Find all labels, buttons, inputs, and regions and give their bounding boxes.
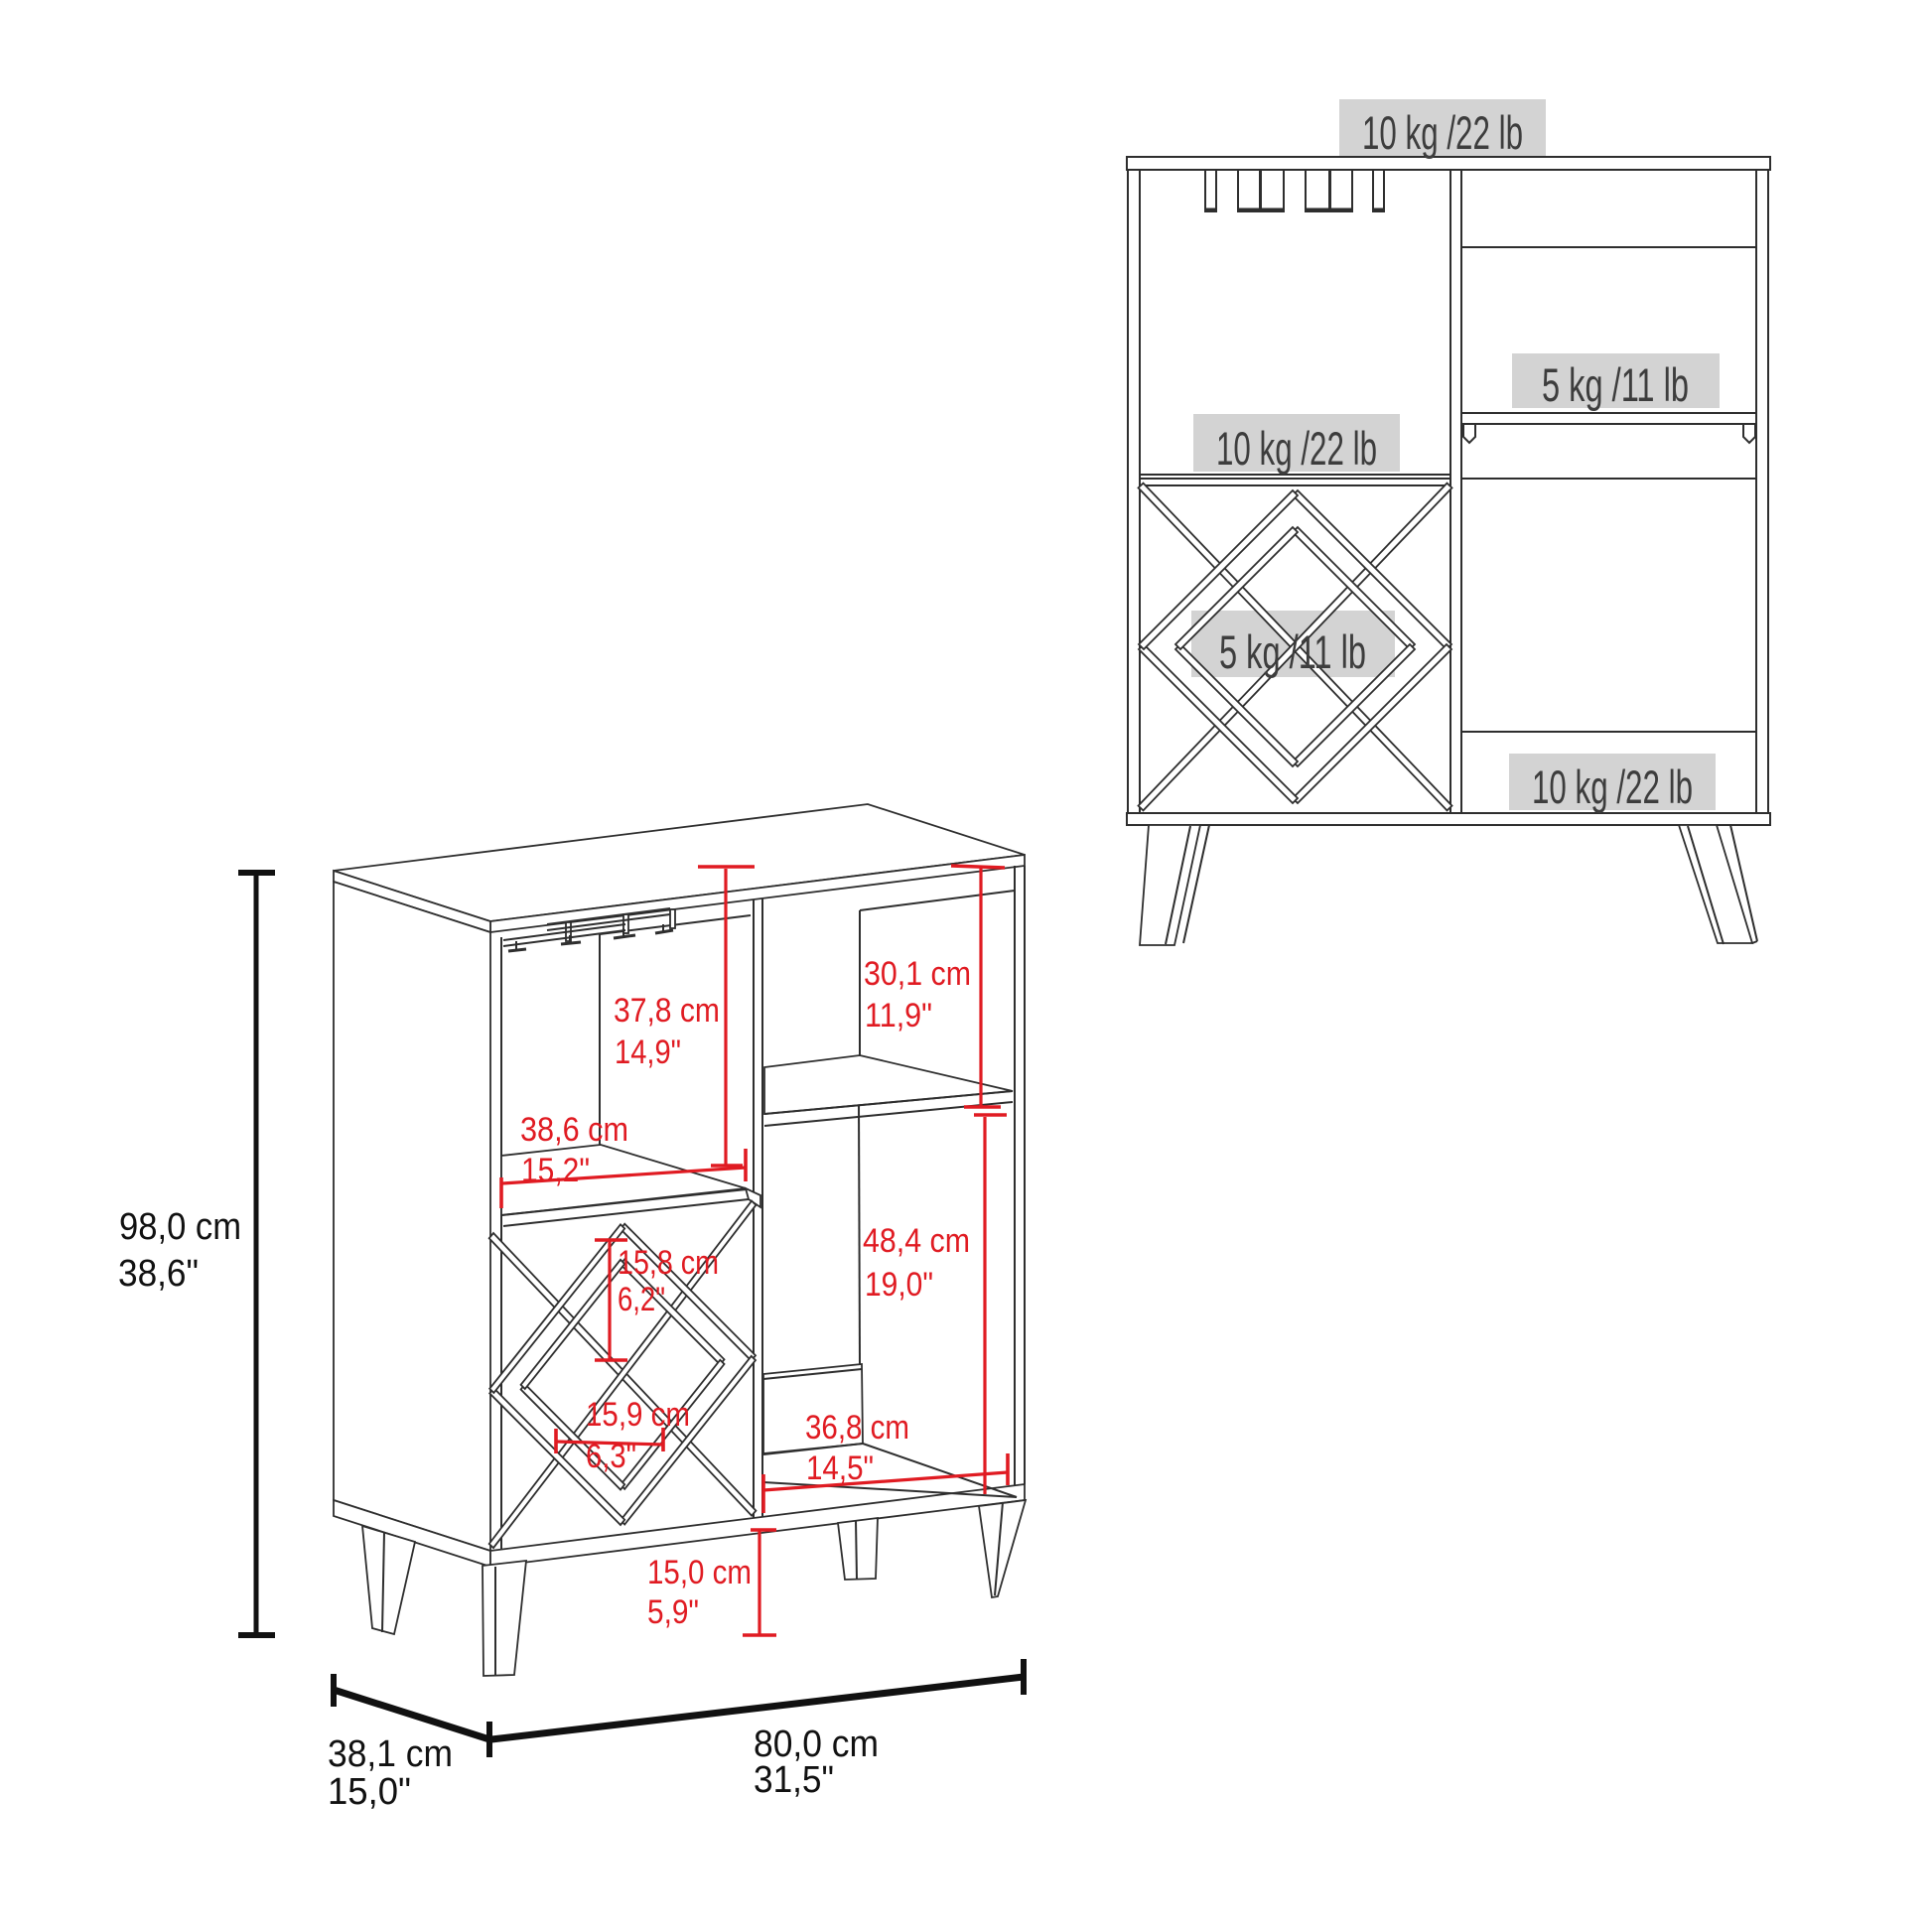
svg-text:11,9": 11,9" <box>865 997 932 1035</box>
svg-text:14,5": 14,5" <box>806 1449 874 1487</box>
svg-text:15,9 cm: 15,9 cm <box>586 1396 690 1434</box>
svg-text:10 kg /22 lb: 10 kg /22 lb <box>1362 106 1523 159</box>
svg-text:36,8 cm: 36,8 cm <box>805 1409 909 1447</box>
svg-text:5 kg /11 lb: 5 kg /11 lb <box>1542 358 1689 411</box>
svg-text:38,6": 38,6" <box>118 1253 199 1295</box>
svg-text:6,3": 6,3" <box>586 1438 636 1475</box>
svg-text:15,0 cm: 15,0 cm <box>647 1554 752 1591</box>
svg-text:5 kg /11 lb: 5 kg /11 lb <box>1219 625 1366 678</box>
svg-text:14,9": 14,9" <box>615 1034 681 1071</box>
svg-text:48,4 cm: 48,4 cm <box>863 1222 970 1260</box>
svg-text:15,0": 15,0" <box>328 1771 411 1813</box>
svg-text:10 kg /22 lb: 10 kg /22 lb <box>1216 422 1377 475</box>
svg-text:98,0 cm: 98,0 cm <box>119 1206 241 1248</box>
svg-text:6,2": 6,2" <box>618 1281 665 1318</box>
svg-text:30,1 cm: 30,1 cm <box>864 955 971 993</box>
svg-text:37,8 cm: 37,8 cm <box>614 992 720 1030</box>
svg-text:15,8 cm: 15,8 cm <box>618 1244 719 1282</box>
svg-text:15,2": 15,2" <box>521 1152 590 1189</box>
svg-text:38,6 cm: 38,6 cm <box>520 1111 628 1149</box>
svg-text:10 kg /22 lb: 10 kg /22 lb <box>1532 760 1693 813</box>
svg-text:5,9": 5,9" <box>647 1593 699 1631</box>
svg-text:31,5": 31,5" <box>754 1759 834 1801</box>
svg-text:38,1 cm: 38,1 cm <box>328 1733 453 1775</box>
svg-text:19,0": 19,0" <box>865 1266 933 1304</box>
